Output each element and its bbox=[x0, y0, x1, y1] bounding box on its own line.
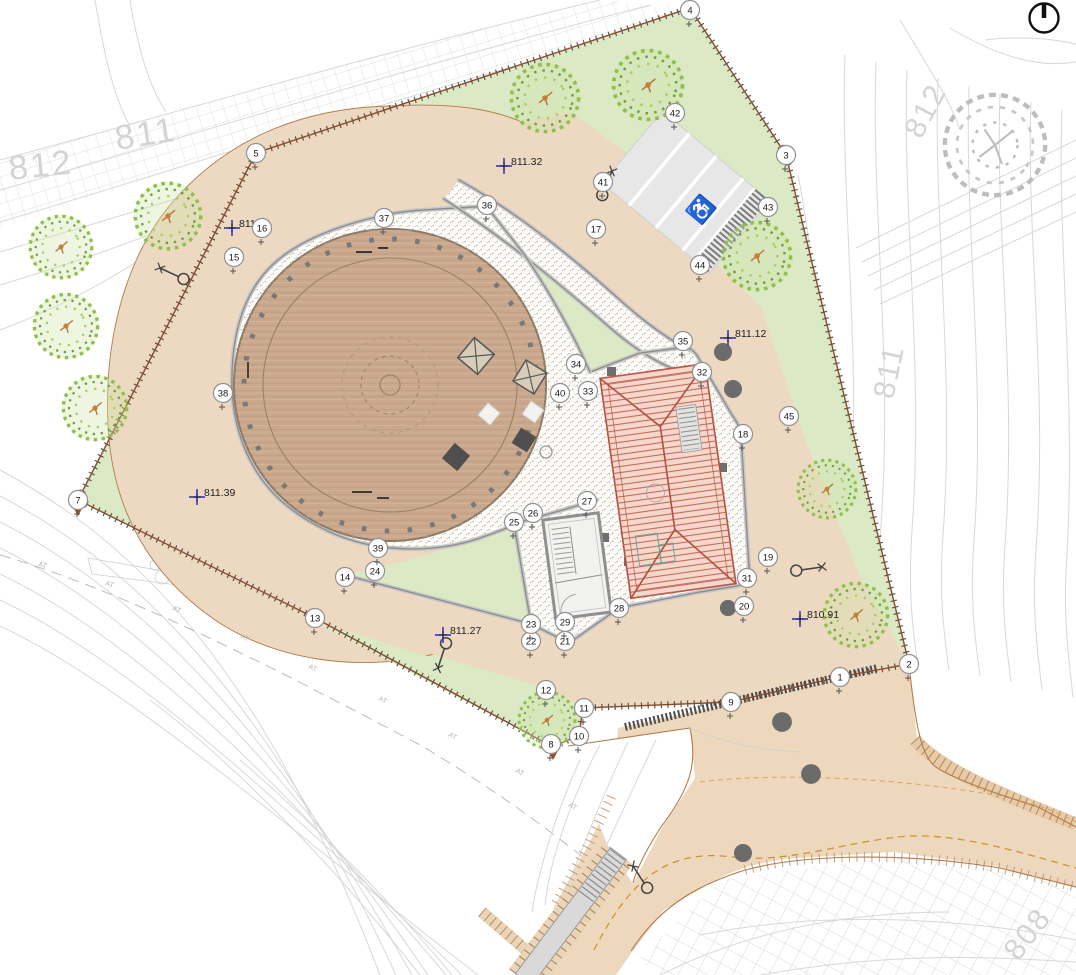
marker-number: 33 bbox=[583, 386, 594, 397]
tree-trunk-dot bbox=[772, 712, 792, 732]
marker-number: 7 bbox=[75, 495, 80, 506]
marker-number: 27 bbox=[582, 496, 593, 507]
tree-trunk-dot bbox=[724, 380, 742, 398]
marker-number: 36 bbox=[482, 200, 493, 211]
elevation-value: 811.12 bbox=[735, 328, 766, 340]
marker-number: 4 bbox=[687, 5, 692, 16]
marker-number: 3 bbox=[783, 150, 788, 161]
marker-number: 38 bbox=[218, 388, 229, 399]
tree-trunk-dot bbox=[714, 343, 732, 361]
elevation-value: 810.91 bbox=[807, 609, 839, 621]
marker-number: 20 bbox=[739, 601, 750, 612]
marker-number: 19 bbox=[763, 552, 774, 563]
elevation-value: 811.39 bbox=[204, 487, 235, 499]
marker-number: 14 bbox=[340, 572, 351, 583]
marker-number: 28 bbox=[614, 603, 625, 614]
marker-number: 24 bbox=[370, 566, 381, 577]
tree-trunk-dot bbox=[734, 844, 752, 862]
marker-number: 45 bbox=[784, 411, 795, 422]
marker-number: 11 bbox=[579, 703, 589, 714]
service-building bbox=[543, 513, 612, 619]
contour-label: 812 bbox=[7, 143, 75, 188]
marker-number: 13 bbox=[310, 613, 321, 624]
marker-number: 21 bbox=[560, 636, 571, 647]
elevation-value: 811.27 bbox=[450, 625, 481, 637]
marker-number: 17 bbox=[591, 224, 602, 235]
marker-number: 9 bbox=[728, 697, 733, 708]
marker-number: 23 bbox=[526, 619, 537, 630]
marker-number: 31 bbox=[742, 573, 753, 584]
site-plan-canvas: ♿ bbox=[0, 0, 1076, 975]
marker-number: 40 bbox=[555, 388, 566, 399]
marker-number: 2 bbox=[906, 659, 911, 670]
elevation-value: 811.32 bbox=[511, 156, 542, 168]
marker-number: 1 bbox=[837, 672, 842, 683]
marker-number: 35 bbox=[678, 336, 689, 347]
marker-number: 18 bbox=[738, 429, 749, 440]
marker-number: 15 bbox=[229, 252, 240, 263]
marker-number: 29 bbox=[560, 617, 571, 628]
marker-number: 5 bbox=[253, 148, 258, 159]
marker-number: 25 bbox=[509, 517, 520, 528]
marker-number: 42 bbox=[670, 108, 681, 119]
marker-number: 37 bbox=[379, 213, 390, 224]
tree-trunk-dot bbox=[801, 764, 821, 784]
marker-number: 41 bbox=[598, 177, 609, 188]
marker-number: 26 bbox=[528, 508, 539, 519]
marker-number: 12 bbox=[541, 685, 552, 696]
marker-number: 39 bbox=[373, 543, 384, 554]
marker-number: 34 bbox=[571, 359, 582, 370]
marker-number: 8 bbox=[548, 739, 553, 750]
marker-number: 32 bbox=[697, 367, 708, 378]
marker-number: 43 bbox=[763, 202, 774, 213]
marker-number: 10 bbox=[574, 731, 585, 742]
marker-number: 16 bbox=[257, 223, 268, 234]
marker-number: 44 bbox=[695, 260, 706, 271]
tree-trunk-dot bbox=[720, 600, 736, 616]
site-plan-drawing: ♿ bbox=[0, 0, 1076, 975]
